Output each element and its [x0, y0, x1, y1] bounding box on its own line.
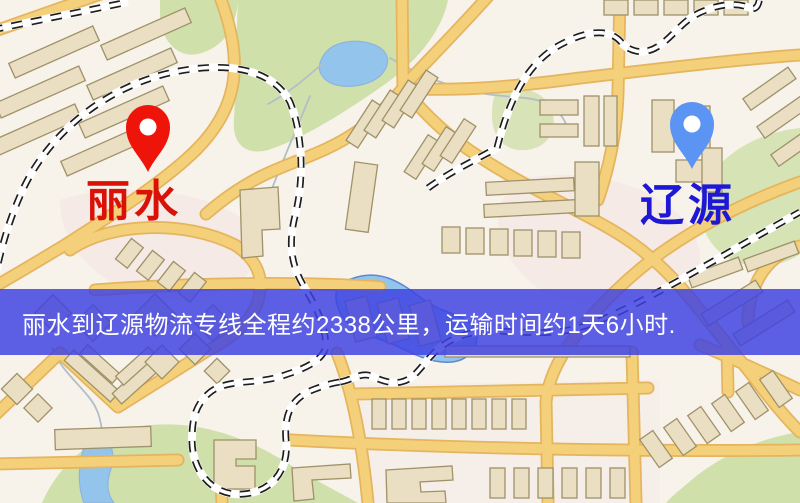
route-map: 丽水 辽源 丽水到辽源物流专线全程约2338公里，运输时间约1天6小时. — [0, 0, 800, 503]
route-banner: 丽水到辽源物流专线全程约2338公里，运输时间约1天6小时. — [0, 289, 800, 355]
origin-label: 丽水 — [86, 177, 182, 226]
route-description: 丽水到辽源物流专线全程约2338公里，运输时间约1天6小时. — [0, 305, 676, 340]
destination-label: 辽源 — [640, 181, 736, 230]
map-canvas: 丽水 辽源 — [0, 0, 800, 503]
